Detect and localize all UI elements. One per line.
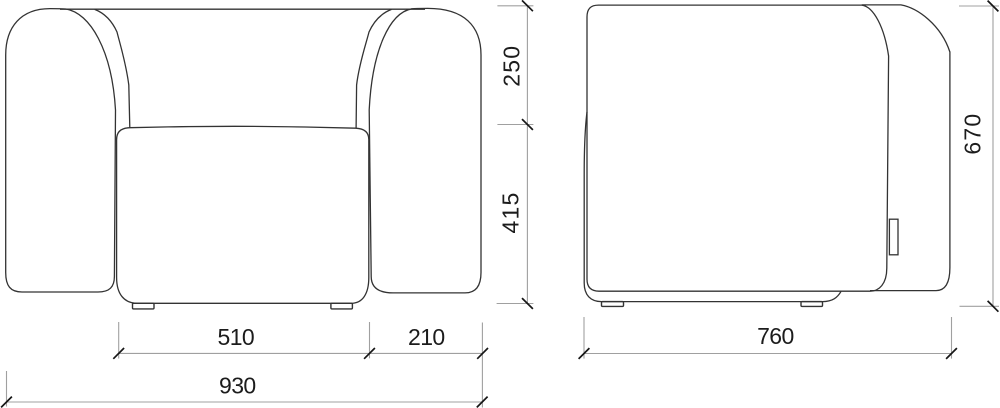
- svg-text:415: 415: [498, 192, 524, 234]
- svg-text:670: 670: [960, 113, 986, 155]
- svg-text:250: 250: [499, 45, 525, 87]
- svg-text:930: 930: [219, 373, 256, 399]
- svg-text:510: 510: [218, 324, 255, 350]
- svg-text:210: 210: [408, 324, 445, 350]
- svg-text:760: 760: [757, 323, 794, 349]
